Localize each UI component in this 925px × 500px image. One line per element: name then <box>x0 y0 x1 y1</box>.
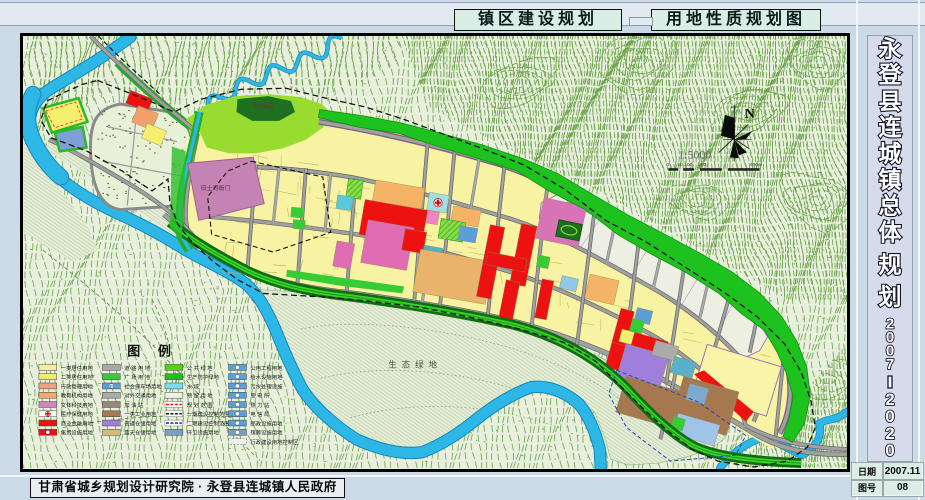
svg-text:环卫设施用地: 环卫设施用地 <box>187 429 220 437</box>
svg-text:道 路 用 地: 道 路 用 地 <box>124 364 151 372</box>
svg-text:城: 城 <box>879 140 902 166</box>
svg-text:社会停车场用地: 社会停车场用地 <box>124 382 162 390</box>
svg-text:加 油 站: 加 油 站 <box>124 401 144 409</box>
svg-text:热 力 站: 热 力 站 <box>250 401 270 409</box>
svg-text:给水设施用地: 给水设施用地 <box>250 373 283 381</box>
svg-text:连: 连 <box>879 114 903 140</box>
svg-text:规 划 范 围: 规 划 范 围 <box>187 401 213 409</box>
svg-text:二期建设控制范围: 二期建设控制范围 <box>187 419 230 427</box>
svg-text:生态绿地: 生态绿地 <box>388 359 442 369</box>
svg-text:二类居住用地: 二类居住用地 <box>61 373 94 381</box>
svg-text:预 留 用 地: 预 留 用 地 <box>187 392 214 400</box>
svg-text:一类居住用地: 一类居住用地 <box>61 364 94 372</box>
svg-text:变 电 所: 变 电 所 <box>250 392 270 400</box>
svg-text:教育机构用地: 教育机构用地 <box>61 392 94 400</box>
svg-text:体: 体 <box>879 219 903 245</box>
svg-text:永: 永 <box>879 36 902 62</box>
svg-text:50 100: 50 100 <box>677 162 692 168</box>
svg-text:0: 0 <box>885 441 894 460</box>
svg-text:电 信 局: 电 信 局 <box>250 410 269 418</box>
svg-text:普通仓储用地: 普通仓储用地 <box>124 419 157 427</box>
svg-text:一类工业用地: 一类工业用地 <box>124 410 157 418</box>
svg-text:商业金融用地: 商业金融用地 <box>61 419 94 427</box>
svg-text:行政建设用地控制区: 行政建设用地控制区 <box>250 438 299 446</box>
svg-text:7: 7 <box>886 356 894 373</box>
svg-text:图例: 图例 <box>127 344 189 359</box>
svg-text:集贸设施用地: 集贸设施用地 <box>61 429 94 437</box>
svg-text:公 共 绿 地: 公 共 绿 地 <box>187 364 214 372</box>
svg-text:露天仓储用地: 露天仓储用地 <box>124 429 157 437</box>
svg-text:规: 规 <box>879 252 902 278</box>
svg-text:1:5000: 1:5000 <box>678 147 711 161</box>
svg-text:登: 登 <box>878 62 903 88</box>
svg-text:行政管理用地: 行政管理用地 <box>61 382 94 390</box>
svg-text:N: N <box>745 106 755 121</box>
svg-text:水 域: 水 域 <box>187 382 200 390</box>
svg-text:烈士陵园: 烈士陵园 <box>253 103 273 110</box>
svg-text:对外交通用地: 对外交通用地 <box>124 392 157 400</box>
svg-text:400m: 400m <box>750 162 762 168</box>
svg-text:公用工程用地: 公用工程用地 <box>250 364 283 372</box>
svg-text:殡葬设施用地: 殡葬设施用地 <box>250 429 283 437</box>
svg-text:生产防护绿地: 生产防护绿地 <box>187 373 220 381</box>
svg-text:总: 总 <box>879 193 902 219</box>
svg-text:广 场 用 地: 广 场 用 地 <box>124 373 151 381</box>
svg-text:医疗保健用地: 医疗保健用地 <box>61 410 94 418</box>
svg-text:一期建设控制范围: 一期建设控制范围 <box>187 410 230 418</box>
svg-text:旧土司衙门: 旧土司衙门 <box>201 184 231 192</box>
svg-text:污水处理设施: 污水处理设施 <box>250 382 283 390</box>
svg-text:0: 0 <box>666 162 669 168</box>
svg-text:P: P <box>110 384 113 389</box>
svg-text:划: 划 <box>879 284 902 310</box>
svg-text:200: 200 <box>698 162 707 168</box>
svg-text:文体科技用地: 文体科技用地 <box>61 401 94 409</box>
svg-text:镇: 镇 <box>879 167 902 193</box>
svg-text:邮政设施用地: 邮政设施用地 <box>250 419 283 427</box>
svg-text:县: 县 <box>879 88 902 114</box>
